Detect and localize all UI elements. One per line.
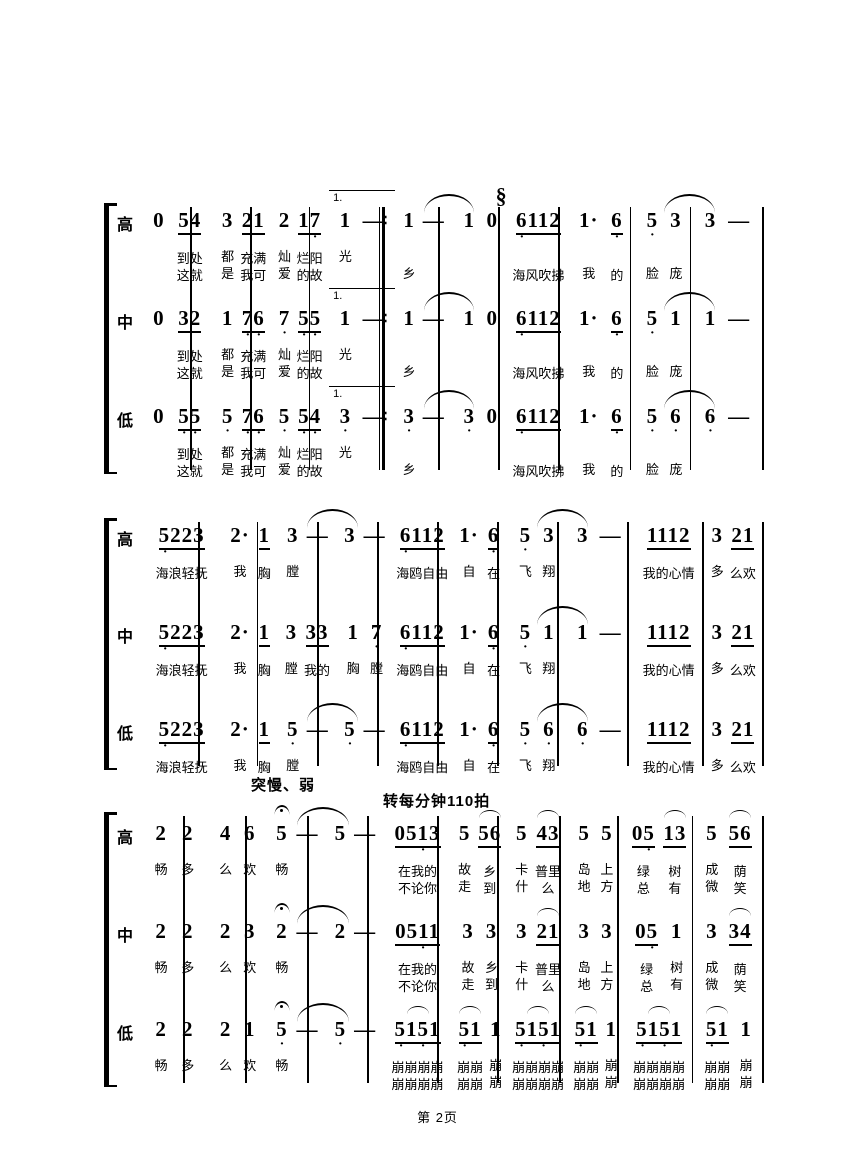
lyric: 不论你 (398, 880, 437, 897)
lyric: 么 (219, 1057, 232, 1074)
octave-dots: · (520, 645, 531, 652)
note-text: 1 (259, 716, 271, 744)
octave-dots: · · (637, 1044, 681, 1051)
note-text: 3 (711, 522, 723, 548)
note-group: 0513 · 在我的不论你 (395, 820, 441, 897)
note-group: 0 (487, 403, 499, 478)
octave-dot (396, 946, 407, 953)
lyric (709, 444, 713, 461)
note-group: 3多 (711, 619, 724, 677)
slur-arc (537, 810, 559, 818)
barline (762, 207, 764, 470)
note-group: 2·我 (230, 619, 250, 677)
slur-arc (729, 810, 751, 818)
octave-dots: · (520, 742, 531, 749)
stave-high: 高5223· 海浪轻抚2·我1胸3膛— 3 — 6112· 海鸥自由1·自6·在… (113, 510, 762, 582)
tie-arc (537, 509, 588, 528)
note-group: 5·都是 (221, 403, 234, 478)
note-text: — (354, 1016, 376, 1042)
octave-dot (411, 647, 422, 654)
note-group: — (423, 403, 445, 478)
lyric: 走 (461, 976, 474, 993)
note-group: — (364, 522, 386, 580)
note-group: 6· 的 (610, 403, 623, 480)
note-text: 2 (220, 918, 232, 944)
lyric: 什 (515, 878, 528, 895)
system-bracket (104, 814, 109, 1085)
octave-dots: · (400, 550, 444, 557)
slur-arc (527, 1006, 549, 1014)
octave-dots: · (632, 848, 654, 855)
lyric (363, 1074, 367, 1091)
note-group: 6112· 海鸥自由 (396, 522, 448, 582)
lyric: 烂阳 (297, 348, 323, 365)
note-text: 4 (220, 820, 232, 846)
octave-dot: · (647, 429, 658, 436)
note-text: 1· (459, 619, 479, 645)
tie-arc (297, 807, 349, 826)
lyric: 卡 (515, 959, 528, 976)
note-group: 3翔 (542, 522, 555, 580)
octave-dot: · (279, 331, 290, 338)
measure: 6· — (566, 716, 633, 776)
note-group: 5 (335, 820, 347, 895)
measure: 5· — (327, 1016, 384, 1093)
tie-arc (307, 509, 358, 528)
measure: 2畅 2多 (113, 918, 208, 995)
note-group: 3乡到 (485, 918, 498, 993)
note-group: 3成微 (705, 918, 718, 993)
octave-dot (549, 1044, 560, 1051)
lyric: 膛 (286, 757, 299, 774)
note-group: 55··烂阳的故 (297, 305, 323, 382)
octave-dot: · (276, 1042, 287, 1049)
lyric: 崩崩 (704, 1076, 730, 1093)
slur-arc (537, 908, 559, 916)
lyric (348, 757, 352, 774)
octave-dots: · (396, 946, 440, 953)
note-text: 2 (155, 918, 167, 944)
measure: 5岛地5上方 (568, 820, 624, 897)
lyric: 崩崩 (457, 1059, 483, 1076)
lyric: 畅 (275, 861, 288, 878)
octave-dots: · · (396, 1044, 440, 1051)
lyric: 崩 (605, 1074, 618, 1091)
octave-dots: · (279, 331, 290, 338)
note-group: — (354, 918, 376, 993)
note-group: 1翔 (542, 619, 555, 677)
octave-dots: · (647, 429, 658, 436)
note-text: 43 (536, 820, 559, 848)
lyric: 的 (610, 267, 623, 284)
note-text: 3 (286, 619, 298, 645)
note-group: 21普里么 (535, 918, 561, 995)
octave-dot (549, 333, 560, 340)
lyric (224, 878, 228, 895)
slur-arc (729, 908, 751, 916)
lyric (339, 976, 343, 993)
lyric: 我的心情 (643, 759, 695, 776)
measure: §6112· 海风吹拂 (510, 207, 568, 284)
octave-dot: · (396, 1044, 407, 1051)
measure: 1 0 (452, 207, 510, 284)
note-text: 5 (459, 820, 471, 846)
note-group: 51· 崩崩崩崩 (457, 1016, 483, 1093)
lyric: 树 (670, 959, 683, 976)
lyric (363, 976, 367, 993)
octave-dot (632, 848, 643, 855)
note-group: 5· 脸 (646, 403, 659, 478)
lyric: 笑 (734, 978, 747, 995)
lyric: 我的 (304, 662, 330, 679)
note-group: — (728, 403, 750, 478)
octave-dots: · (464, 429, 475, 436)
octave-dots: · (706, 1044, 728, 1051)
note-text: — (364, 522, 386, 548)
lyric: 的 (610, 463, 623, 480)
measure: 3 — (693, 207, 762, 284)
octave-dots: · (160, 550, 204, 557)
lyric (157, 248, 161, 265)
note-group: 5卡什 (515, 820, 528, 895)
stave-mid: 中2畅 2多 2么 3欢 2畅 — 2 — 0511 · 在我的不论你3故走3乡… (113, 906, 762, 995)
measure: 3 — (566, 522, 633, 582)
octave-dot: · (647, 233, 658, 240)
note-group: 1· 我 (579, 403, 599, 478)
note-group: 1·自 (459, 619, 479, 677)
lyric: 膛 (286, 563, 299, 580)
octave-dots: · (543, 742, 554, 749)
measure: 2么 1欢 (208, 1016, 267, 1093)
note-group: — (728, 305, 750, 380)
note-group: 5·飞 (519, 716, 532, 774)
lyric (737, 363, 741, 380)
lyric: 崩崩崩崩 (512, 1076, 564, 1093)
volta-bracket: 1. (329, 288, 395, 376)
lyric: 不论你 (398, 978, 437, 995)
note-text: 1 (347, 619, 359, 645)
octave-dots: · (299, 235, 321, 242)
lyric: 树 (668, 863, 681, 880)
lyric: 充满 (240, 348, 266, 365)
note-text: 1· (579, 207, 599, 233)
lyric: 成 (705, 959, 718, 976)
lyric (316, 757, 320, 774)
tie-arc (664, 194, 715, 213)
octave-dots: · (611, 431, 622, 438)
measure: 1112我的心情 (633, 522, 705, 582)
lyric (674, 248, 678, 265)
note-text: 3 (244, 918, 256, 944)
octave-dots: · (396, 848, 440, 855)
note-group: 5·飞 (519, 522, 532, 580)
octave-dots: · (705, 429, 716, 436)
lyric (581, 660, 585, 677)
note-group: 3卡什 (515, 918, 528, 993)
octave-dot: · (520, 742, 531, 749)
note-group: — (307, 716, 329, 774)
lyric: 的故 (297, 463, 323, 480)
lyric (587, 346, 591, 363)
note-group: 5223· 海浪轻抚 (156, 522, 208, 582)
lyric (306, 1074, 310, 1091)
octave-dot (648, 1044, 659, 1051)
note-text: 3 (711, 619, 723, 645)
note-group: 05 ·绿总 (632, 820, 655, 897)
note-text: 1· (579, 403, 599, 429)
lyric: 么欢 (730, 565, 756, 582)
measure: 05 ·绿总1树有 (623, 918, 695, 995)
note-group: 1 (464, 305, 476, 380)
lyric: 崩 (605, 1057, 618, 1074)
measure: 3成微34荫笑 (695, 918, 762, 995)
measure: 5·飞6·翔 (508, 716, 565, 776)
lyric: 多 (711, 563, 724, 580)
octave-dot: · (400, 550, 411, 557)
lyric (615, 348, 619, 365)
lyric (280, 1074, 284, 1091)
note-group: 1· 我 (579, 207, 599, 282)
measure: 3· 乡— (395, 403, 452, 480)
note-group: 5·畅 (275, 1016, 288, 1091)
note-text: 3 (462, 918, 474, 944)
note-group: 3岛地 (578, 918, 591, 993)
octave-dots: · (520, 548, 531, 555)
note-group: 2多 (181, 1016, 194, 1091)
octave-dot: · (670, 429, 681, 436)
note-group: 1 乡 (403, 207, 416, 282)
lyric: 我 (582, 461, 595, 478)
lyric (709, 248, 713, 265)
measure: 2 — (327, 918, 384, 995)
measure: 5151· · 崩崩崩崩崩崩崩崩 (623, 1016, 695, 1093)
note-text: 34 (729, 918, 752, 946)
measure: 2么 3欢 (208, 918, 267, 995)
barline (762, 816, 764, 1083)
note-text: — (354, 918, 376, 944)
lyric (467, 461, 471, 478)
note-group: 0 (153, 305, 165, 380)
octave-dot (717, 1044, 728, 1051)
note-group: 1112我的心情 (643, 716, 695, 776)
lyric: 乡 (403, 363, 416, 380)
measure: 5223· 海浪轻抚 (113, 716, 222, 776)
octave-dot (422, 744, 433, 751)
note-group: 3· (464, 403, 476, 478)
octave-dot: · (160, 550, 171, 557)
octave-dot: · (647, 331, 658, 338)
lyric: 多 (711, 660, 724, 677)
octave-dot: · (310, 235, 321, 242)
score-page: 高0 54到处这就3都是21充满我可2灿爱17 ·烂阳的故1.∶1光 — 1 乡… (0, 0, 862, 1153)
note-group: 7·灿爱 (278, 305, 291, 380)
note-text: 2· (230, 522, 250, 548)
lyric: 爱 (278, 461, 291, 478)
note-group: 2畅 (155, 918, 168, 993)
measure: 5·灿爱54··烂阳的故 (273, 403, 329, 480)
lyric (159, 878, 163, 895)
slur-arc (706, 1006, 728, 1014)
octave-dot (538, 333, 549, 340)
measure: 2畅 — (267, 918, 326, 995)
note-group: 34荫笑 (729, 918, 752, 995)
measure: 6112· 海风吹拂 (510, 305, 568, 382)
lyric: 总 (640, 978, 653, 995)
system-2: 高5223· 海浪轻抚2·我1胸3膛— 3 — 6112· 海鸥自由1·自6·在… (113, 510, 762, 776)
measure: 2畅 2多 (113, 1016, 208, 1093)
note-group: — (297, 820, 319, 895)
lyric: 我可 (240, 365, 266, 382)
lyric: 庞 (669, 363, 682, 380)
lyric: 在我的 (398, 863, 437, 880)
lyric: 我 (234, 757, 247, 774)
lyric: 我可 (240, 267, 266, 284)
lyric: 这就 (177, 463, 203, 480)
lyric (737, 248, 741, 265)
lyric (248, 976, 252, 993)
note-text: 5 (706, 820, 718, 846)
measure: 1· 我6· 的 (567, 207, 635, 284)
note-group: 21充满我可 (240, 207, 266, 284)
lyric: 充满 (240, 250, 266, 267)
lyric: 到 (483, 880, 496, 897)
note-group: 6112· 海风吹拂 (512, 207, 564, 284)
lyric (581, 563, 585, 580)
note-group: — (423, 207, 445, 282)
note-group: 3 (344, 522, 356, 580)
measure: 1112我的心情 (633, 619, 705, 679)
note-text: 0 (153, 403, 165, 429)
note-group: 13树有 (663, 820, 686, 897)
octave-dot: · (253, 333, 264, 340)
note-text: 1 (403, 305, 415, 331)
lyric (490, 363, 494, 380)
measure: 51· 崩崩崩崩1崩崩 (695, 1016, 762, 1093)
measure: 3多21么欢 (705, 716, 762, 776)
note-text: 3 (711, 716, 723, 742)
lyric: 我的心情 (643, 565, 695, 582)
note-group: 5·飞 (519, 619, 532, 677)
measure: 1 0 (452, 305, 510, 382)
lyric: 畅 (155, 959, 168, 976)
octave-dots: · (222, 429, 233, 436)
measure: 1都是76··充满我可 (215, 305, 273, 382)
note-text: — (728, 207, 750, 233)
note-group: — (423, 305, 445, 380)
note-text: 1· (459, 716, 479, 742)
octave-dot: · (418, 1044, 429, 1051)
note-text: 56 (729, 820, 752, 848)
lyric (490, 461, 494, 478)
note-group: 51· 崩崩崩崩 (704, 1016, 730, 1093)
lyric: 笑 (734, 880, 747, 897)
note-group: 6· 庞 (669, 403, 682, 478)
octave-dots: · (575, 1044, 597, 1051)
note-text: 2 (220, 1016, 232, 1042)
lyric: 烂阳 (297, 446, 323, 463)
lyric (363, 878, 367, 895)
barline (762, 522, 764, 766)
octave-dot: · (287, 742, 298, 749)
lyric: 崩 (740, 1057, 753, 1074)
note-text: — (728, 305, 750, 331)
lyric (306, 976, 310, 993)
measure: 5故走56乡到 (451, 820, 508, 897)
measure: 5· 脸6· 庞 (635, 403, 693, 480)
octave-dot (527, 235, 538, 242)
measure: 5223· 海浪轻抚 (113, 522, 222, 582)
lyric (339, 1074, 343, 1091)
measure: 1.∶1光 — (328, 207, 395, 284)
lyric (363, 861, 367, 878)
lyric (316, 563, 320, 580)
lyric (159, 1074, 163, 1091)
note-group: 1崩崩 (605, 1016, 618, 1091)
note-text: 0 (153, 305, 165, 331)
octave-dot (299, 235, 310, 242)
note-group: 6·在 (487, 522, 500, 582)
lyric: 我 (582, 363, 595, 380)
lyric: 在我的 (398, 961, 437, 978)
lyric: 充满 (240, 446, 266, 463)
lyric: 到处 (177, 446, 203, 463)
lyric (737, 265, 741, 282)
measure: 0 32到处这就 (113, 305, 215, 382)
lyric: 崩崩崩崩 (512, 1059, 564, 1076)
octave-dots: · (400, 744, 444, 751)
lyric (363, 1057, 367, 1074)
octave-dot: · (575, 1044, 586, 1051)
lyric (339, 1057, 343, 1074)
octave-dot (527, 431, 538, 438)
note-group: 0 (487, 305, 499, 380)
lyric (348, 563, 352, 580)
lyric (490, 248, 494, 265)
score: 高0 54到处这就3都是21充满我可2灿爱17 ·烂阳的故1.∶1光 — 1 乡… (113, 195, 762, 1093)
note-group: 5畅 (275, 820, 288, 895)
note-group: 6· 的 (610, 305, 623, 382)
note-group: 54到处这就 (177, 207, 203, 284)
note-group: 5151· · 崩崩崩崩崩崩崩崩 (392, 1016, 444, 1093)
measure: 4么 6欢 (208, 820, 267, 897)
measure: 6112· 海鸥自由 (394, 522, 451, 582)
lyric (709, 346, 713, 363)
lyric: 海鸥自由 (396, 662, 448, 679)
lyric: 海浪轻抚 (156, 662, 208, 679)
lyric: 乡 (403, 461, 416, 478)
octave-dots: ·· (179, 431, 201, 438)
octave-dot: · (310, 431, 321, 438)
lyric: 上 (600, 959, 613, 976)
lyric: 崩崩崩崩 (392, 1076, 444, 1093)
note-group: 1 庞 (669, 305, 682, 380)
measure: 0 54到处这就 (113, 207, 215, 284)
lyric: 飞 (519, 757, 532, 774)
system-3: 突慢、弱转每分钟110拍高2畅 2多 4么 6欢 5畅 — 5 — 0513 ·… (113, 776, 762, 1093)
note-text: 3 (486, 918, 498, 944)
lyric (363, 959, 367, 976)
measure: 1 乡— (395, 207, 452, 284)
note-text: 2 (155, 1016, 167, 1042)
slur-arc (575, 1006, 597, 1014)
lyric (157, 363, 161, 380)
lyric: 多 (181, 861, 194, 878)
lyric (587, 248, 591, 265)
lyric (407, 346, 411, 363)
lyric (737, 461, 741, 478)
lyric: 畅 (275, 1057, 288, 1074)
note-group: 1 (577, 619, 589, 677)
